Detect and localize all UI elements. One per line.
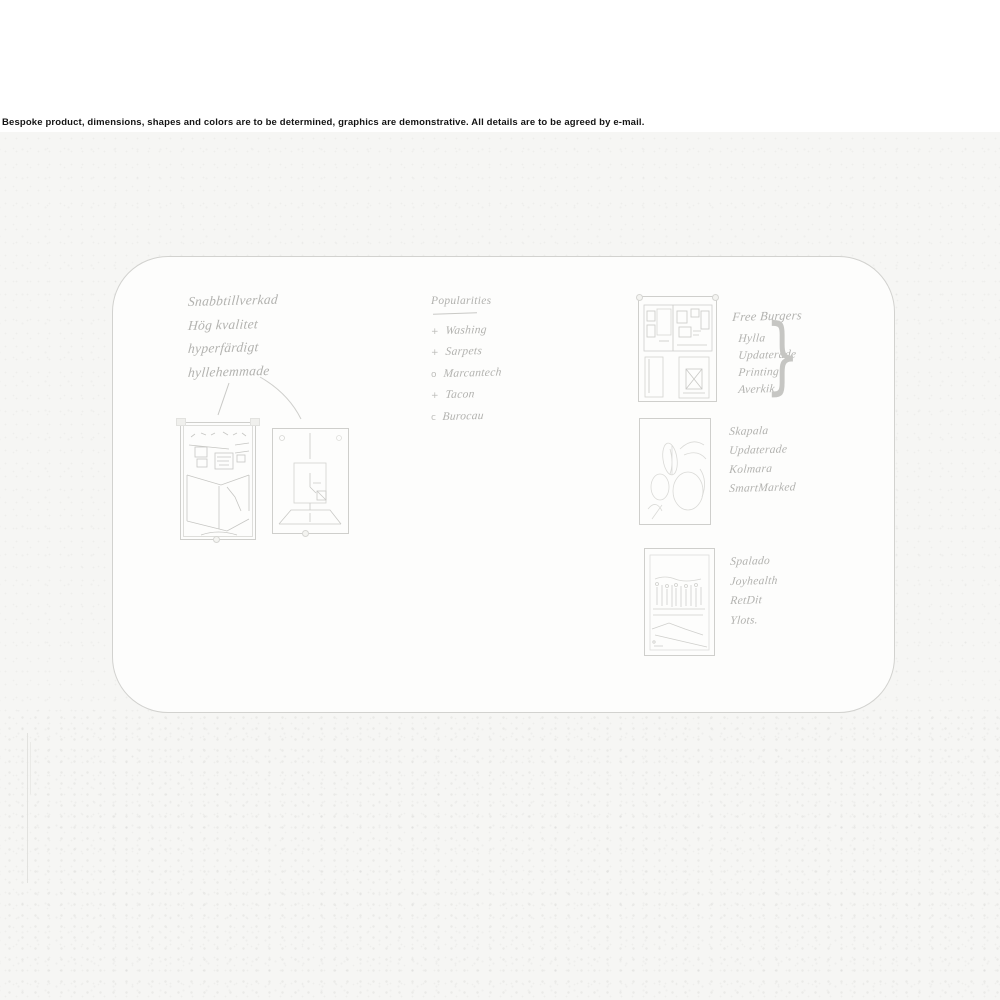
note-line: Snabbtillverkad	[187, 288, 279, 314]
photo-kitchen-sketch	[180, 422, 256, 540]
diagram-sketch-drawing	[273, 429, 348, 533]
list-item-label: Marcantech	[443, 366, 502, 380]
list-item-label: Washing	[445, 323, 487, 336]
note-line: Kolmara	[729, 459, 797, 480]
tape-corner	[250, 418, 260, 426]
note-line: SmartMarked	[729, 478, 797, 499]
pin-icon	[213, 536, 220, 543]
note-line: Updaterade	[729, 440, 797, 461]
note-line: RetDit	[729, 591, 778, 612]
pin-icon	[712, 294, 719, 301]
shapes-notes-block: Skapala Updaterade Kolmara SmartMarked	[730, 423, 797, 499]
list-item: + Sarpets	[431, 346, 502, 357]
bullet-marker: +	[431, 327, 439, 337]
note-line: Joyhealth	[729, 571, 778, 592]
stray-sketch-line	[27, 733, 28, 883]
list-item: + Tacon	[431, 389, 502, 400]
popular-list: Popularities + Washing + Sarpets o Marca…	[431, 291, 502, 422]
pin-icon	[302, 530, 309, 537]
bullet-marker: c	[431, 413, 436, 423]
kitchen-sketch-drawing	[181, 423, 255, 539]
list-item-label: Tacon	[445, 388, 475, 401]
tape-corner	[176, 418, 186, 426]
curly-brace: }	[765, 315, 800, 395]
collage-sketch-drawing	[639, 297, 716, 401]
whiteboard: Snabbtillverkad Hög kvalitet hyperfärdig…	[112, 256, 895, 713]
list-title: Popularities	[431, 295, 491, 307]
bullet-marker: +	[431, 391, 439, 401]
pin-icon	[636, 294, 643, 301]
photo-floral-sketch	[639, 418, 711, 525]
list-item-label: Sarpets	[445, 345, 483, 358]
stray-sketch-line-2	[30, 742, 31, 794]
bullet-marker: +	[431, 348, 439, 358]
list-item: o Marcantech	[431, 368, 502, 379]
list-item: c Burocau	[431, 411, 502, 422]
photo-crowd-sketch	[644, 548, 715, 656]
crowd-sketch-drawing	[645, 549, 714, 655]
bullet-marker: o	[431, 370, 437, 380]
people-notes-block: Spalado Joyhealth RetDit Ylots.	[731, 553, 778, 631]
note-line: hyperfärdigt	[187, 335, 279, 361]
title-underline	[433, 312, 477, 315]
photo-collage-sketch	[638, 296, 717, 402]
paper-texture-bottom	[0, 710, 1000, 1000]
floral-sketch-drawing	[640, 419, 710, 524]
note-line: Spalado	[729, 552, 778, 573]
disclaimer-text: Bespoke product, dimensions, shapes and …	[2, 117, 982, 128]
list-item: + Washing	[431, 325, 502, 336]
page: Bespoke product, dimensions, shapes and …	[0, 0, 1000, 1000]
photo-diagram-sketch	[272, 428, 349, 534]
note-line: Ylots.	[729, 610, 778, 631]
list-item-label: Burocau	[442, 409, 484, 422]
note-line: Hög kvalitet	[187, 311, 279, 337]
note-line: Skapala	[729, 421, 797, 442]
